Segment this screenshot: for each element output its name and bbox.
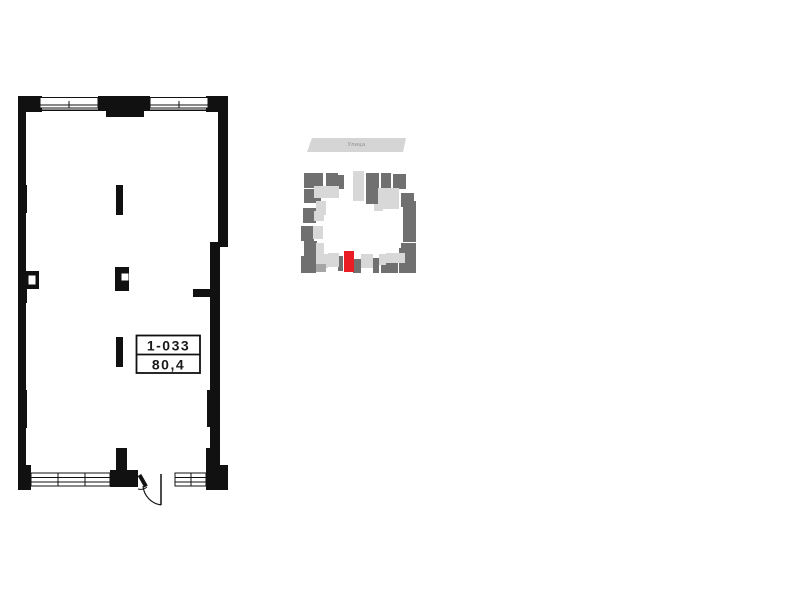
minimap-unit-block: [316, 243, 324, 254]
minimap-unit-block: [361, 254, 373, 268]
minimap-unit-block: [301, 256, 316, 273]
street-banner: Улица: [307, 138, 406, 152]
minimap-unit-block: [381, 173, 391, 188]
window-top-right: [150, 98, 208, 112]
street-label: Улица: [347, 142, 365, 148]
minimap-unit-block: [386, 253, 405, 263]
window-top-left: [40, 98, 98, 112]
highlighted-unit-marker[interactable]: [344, 251, 354, 272]
minimap-unit-block: [379, 254, 386, 265]
minimap-unit-block: [316, 264, 326, 272]
minimap-unit-block: [393, 174, 406, 189]
unit-area: 80,4: [152, 357, 185, 373]
minimap-unit-block: [353, 171, 364, 201]
window-bottom-right: [175, 473, 206, 486]
minimap-unit-block: [328, 253, 339, 267]
minimap-unit-block: [374, 204, 383, 211]
building-minimap: Улица: [299, 128, 424, 280]
window-bottom-left: [31, 473, 110, 486]
minimap-unit-block: [313, 226, 323, 239]
floorplan-canvas: 1-033 80,4 Улица: [0, 0, 800, 600]
minimap-unit-block: [314, 211, 324, 221]
floorplan-drawing: 1-033 80,4: [0, 0, 800, 600]
minimap-unit-block: [403, 201, 416, 242]
unit-number: 1-033: [147, 338, 190, 354]
minimap-unit-block: [314, 186, 339, 198]
door-swing: [138, 474, 161, 505]
unit-label-box: 1-033 80,4: [137, 336, 201, 374]
minimap-unit-block: [353, 259, 361, 273]
walls: [18, 96, 228, 490]
